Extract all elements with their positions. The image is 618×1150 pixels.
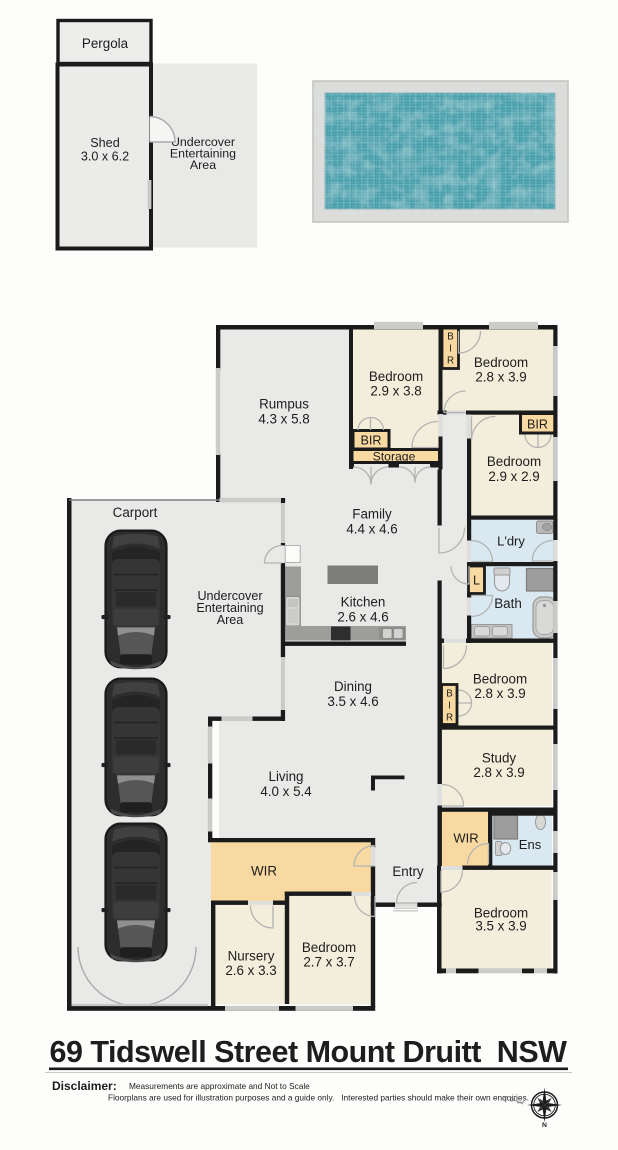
svg-text:Carport: Carport (113, 505, 158, 520)
svg-text:2.7 x 3.7: 2.7 x 3.7 (303, 955, 354, 970)
svg-text:Floorplans are used for illust: Floorplans are used for illustration pur… (108, 1093, 529, 1103)
svg-text:2.8 x 3.9: 2.8 x 3.9 (475, 370, 526, 385)
svg-text:Measurements are approximate a: Measurements are approximate and Not to … (129, 1081, 310, 1091)
svg-text:4.3 x 5.8: 4.3 x 5.8 (258, 412, 309, 427)
svg-text:N: N (542, 1122, 547, 1129)
svg-text:69 Tidswell Street Mount Druit: 69 Tidswell Street Mount Druitt NSW (50, 1035, 568, 1069)
svg-text:2.6 x 3.3: 2.6 x 3.3 (225, 963, 276, 978)
svg-text:Bath: Bath (494, 596, 522, 611)
svg-text:Bedroom: Bedroom (474, 355, 528, 370)
svg-text:2.9 x 2.9: 2.9 x 2.9 (488, 469, 539, 484)
svg-text:Living: Living (269, 769, 304, 784)
svg-text:2.8 x 3.9: 2.8 x 3.9 (474, 686, 525, 701)
svg-text:Entry: Entry (392, 864, 424, 879)
svg-text:Area: Area (217, 613, 244, 627)
svg-text:Ens: Ens (519, 837, 542, 852)
svg-text:B: B (447, 332, 454, 343)
svg-text:Disclaimer:: Disclaimer: (52, 1079, 117, 1093)
svg-text:2.9 x 3.8: 2.9 x 3.8 (370, 384, 421, 399)
svg-text:B: B (446, 689, 453, 700)
svg-text:Rumpus: Rumpus (259, 397, 309, 412)
svg-text:I: I (448, 701, 451, 712)
svg-text:Shed: Shed (90, 136, 119, 150)
svg-text:R: R (446, 713, 453, 724)
svg-text:I: I (449, 344, 452, 355)
svg-text:Family: Family (352, 507, 392, 522)
svg-text:Storage: Storage (373, 450, 416, 464)
svg-text:BIR: BIR (361, 434, 382, 448)
svg-text:3.0 x 6.2: 3.0 x 6.2 (81, 150, 129, 164)
svg-text:Kitchen: Kitchen (341, 595, 386, 610)
svg-text:Bedroom: Bedroom (473, 672, 527, 687)
svg-text:4.0 x 5.4: 4.0 x 5.4 (260, 784, 312, 799)
svg-text:Nursery: Nursery (228, 949, 275, 964)
svg-text:3.5 x 3.9: 3.5 x 3.9 (475, 919, 526, 934)
svg-text:2.8 x 3.9: 2.8 x 3.9 (473, 765, 524, 780)
svg-text:2.6 x 4.6: 2.6 x 4.6 (337, 610, 388, 625)
svg-text:3.5 x 4.6: 3.5 x 4.6 (327, 694, 378, 709)
svg-text:Area: Area (190, 158, 216, 172)
svg-text:WIR: WIR (251, 864, 277, 879)
svg-text:R: R (447, 356, 454, 367)
svg-text:L'dry: L'dry (497, 534, 525, 549)
svg-text:Bedroom: Bedroom (369, 369, 423, 384)
svg-text:Bedroom: Bedroom (302, 940, 356, 955)
svg-text:Bedroom: Bedroom (487, 454, 541, 469)
svg-text:Study: Study (482, 751, 517, 766)
svg-text:4.4 x 4.6: 4.4 x 4.6 (346, 522, 397, 537)
svg-text:Dining: Dining (334, 679, 372, 694)
svg-text:BIR: BIR (527, 418, 548, 432)
svg-text:Pergola: Pergola (82, 36, 129, 51)
svg-text:WIR: WIR (453, 831, 478, 846)
svg-text:L: L (473, 574, 480, 588)
